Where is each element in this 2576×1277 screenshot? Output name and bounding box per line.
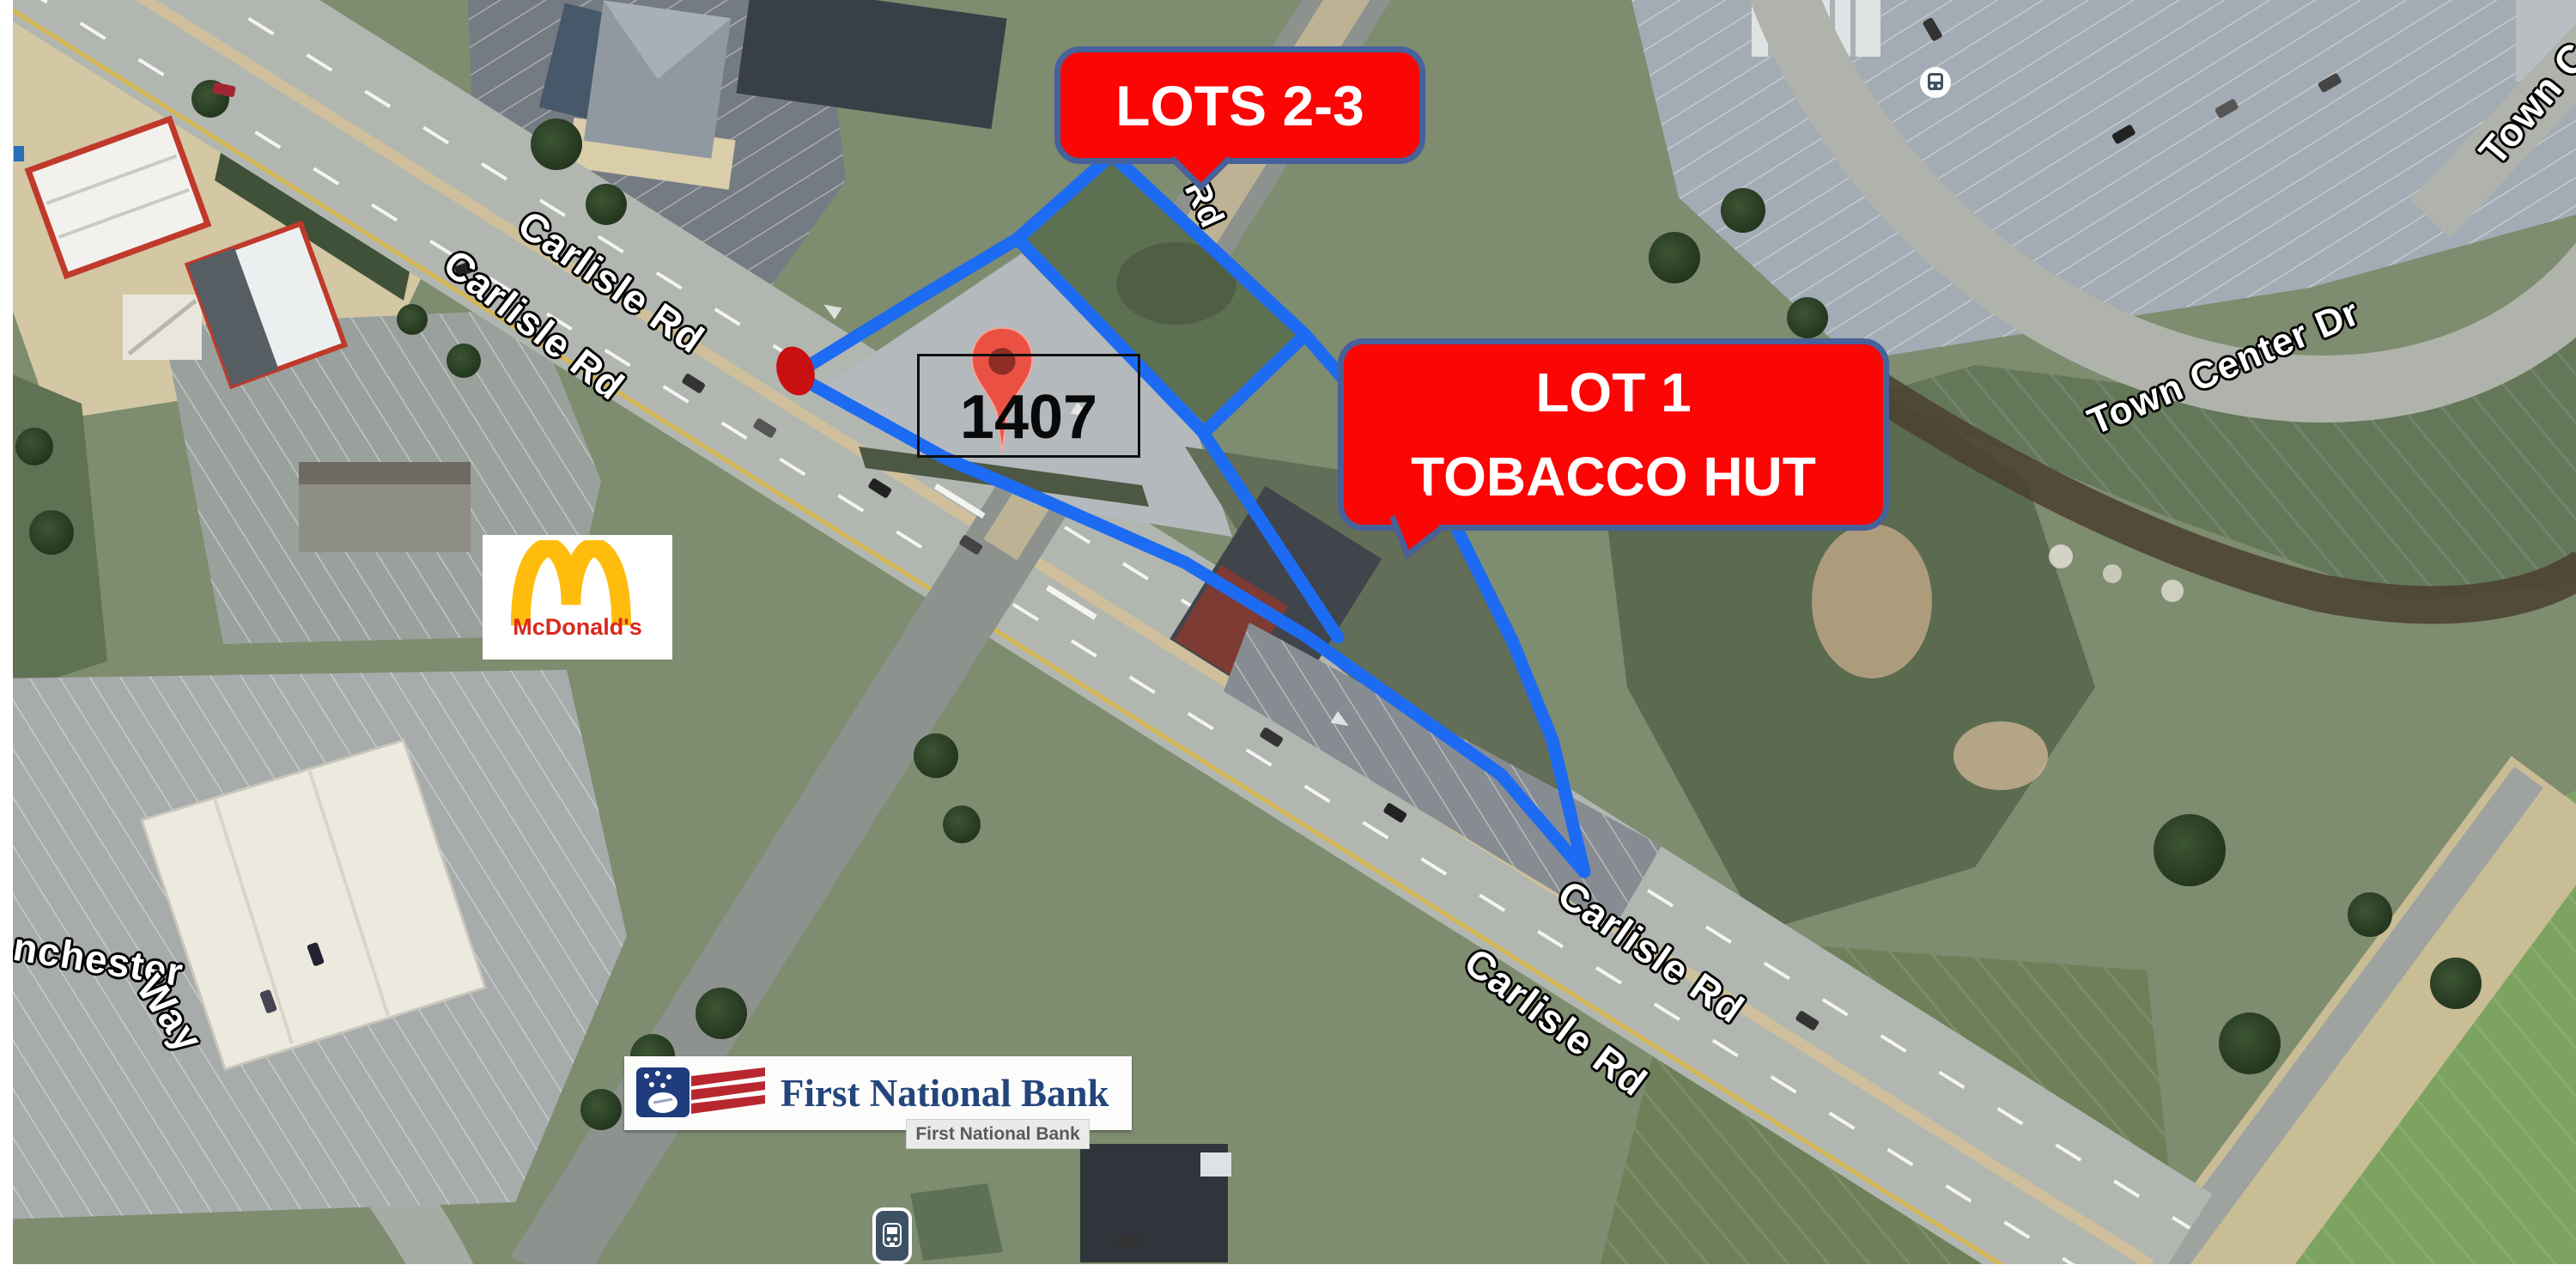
property-boundary-overlay: [0, 0, 2576, 1277]
mcdonalds-wordmark: McDonald's: [513, 614, 641, 641]
fnb-map-place-label: First National Bank: [906, 1119, 1090, 1149]
bus-icon: [1926, 72, 1945, 93]
image-margin: [0, 1264, 2576, 1277]
fnb-wordmark: First National Bank: [781, 1071, 1109, 1116]
callout-lots-2-3: LOTS 2-3: [1054, 46, 1425, 164]
parcel-address: 1407: [960, 382, 1097, 453]
aerial-site-map: 1407 LOTS 2-3 LOT 1 TOBACCO HUT Carlisle…: [0, 0, 2576, 1277]
callout-lot1-line2: TOBACCO HUT: [1411, 435, 1816, 519]
golden-arches-icon: [509, 540, 647, 626]
callout-lots-2-3-label: LOTS 2-3: [1115, 73, 1364, 138]
mcdonalds-logo-plaque: McDonald's: [483, 535, 672, 660]
image-margin: [0, 0, 13, 1277]
callout-lot-1-tobacco-hut: LOT 1 TOBACCO HUT: [1338, 338, 1889, 531]
bus-stop-icon: [1920, 67, 1951, 98]
fnb-flag-icon: [635, 1066, 772, 1121]
parcel-1407-outline: 1407: [917, 354, 1140, 458]
bus-icon: [882, 1223, 902, 1249]
callout-lot1-line1: LOT 1: [1535, 350, 1691, 435]
bus-stop-icon: [872, 1207, 912, 1264]
lot-division-line-2: [1209, 335, 1305, 428]
boundary-left-edge: [800, 155, 1112, 371]
